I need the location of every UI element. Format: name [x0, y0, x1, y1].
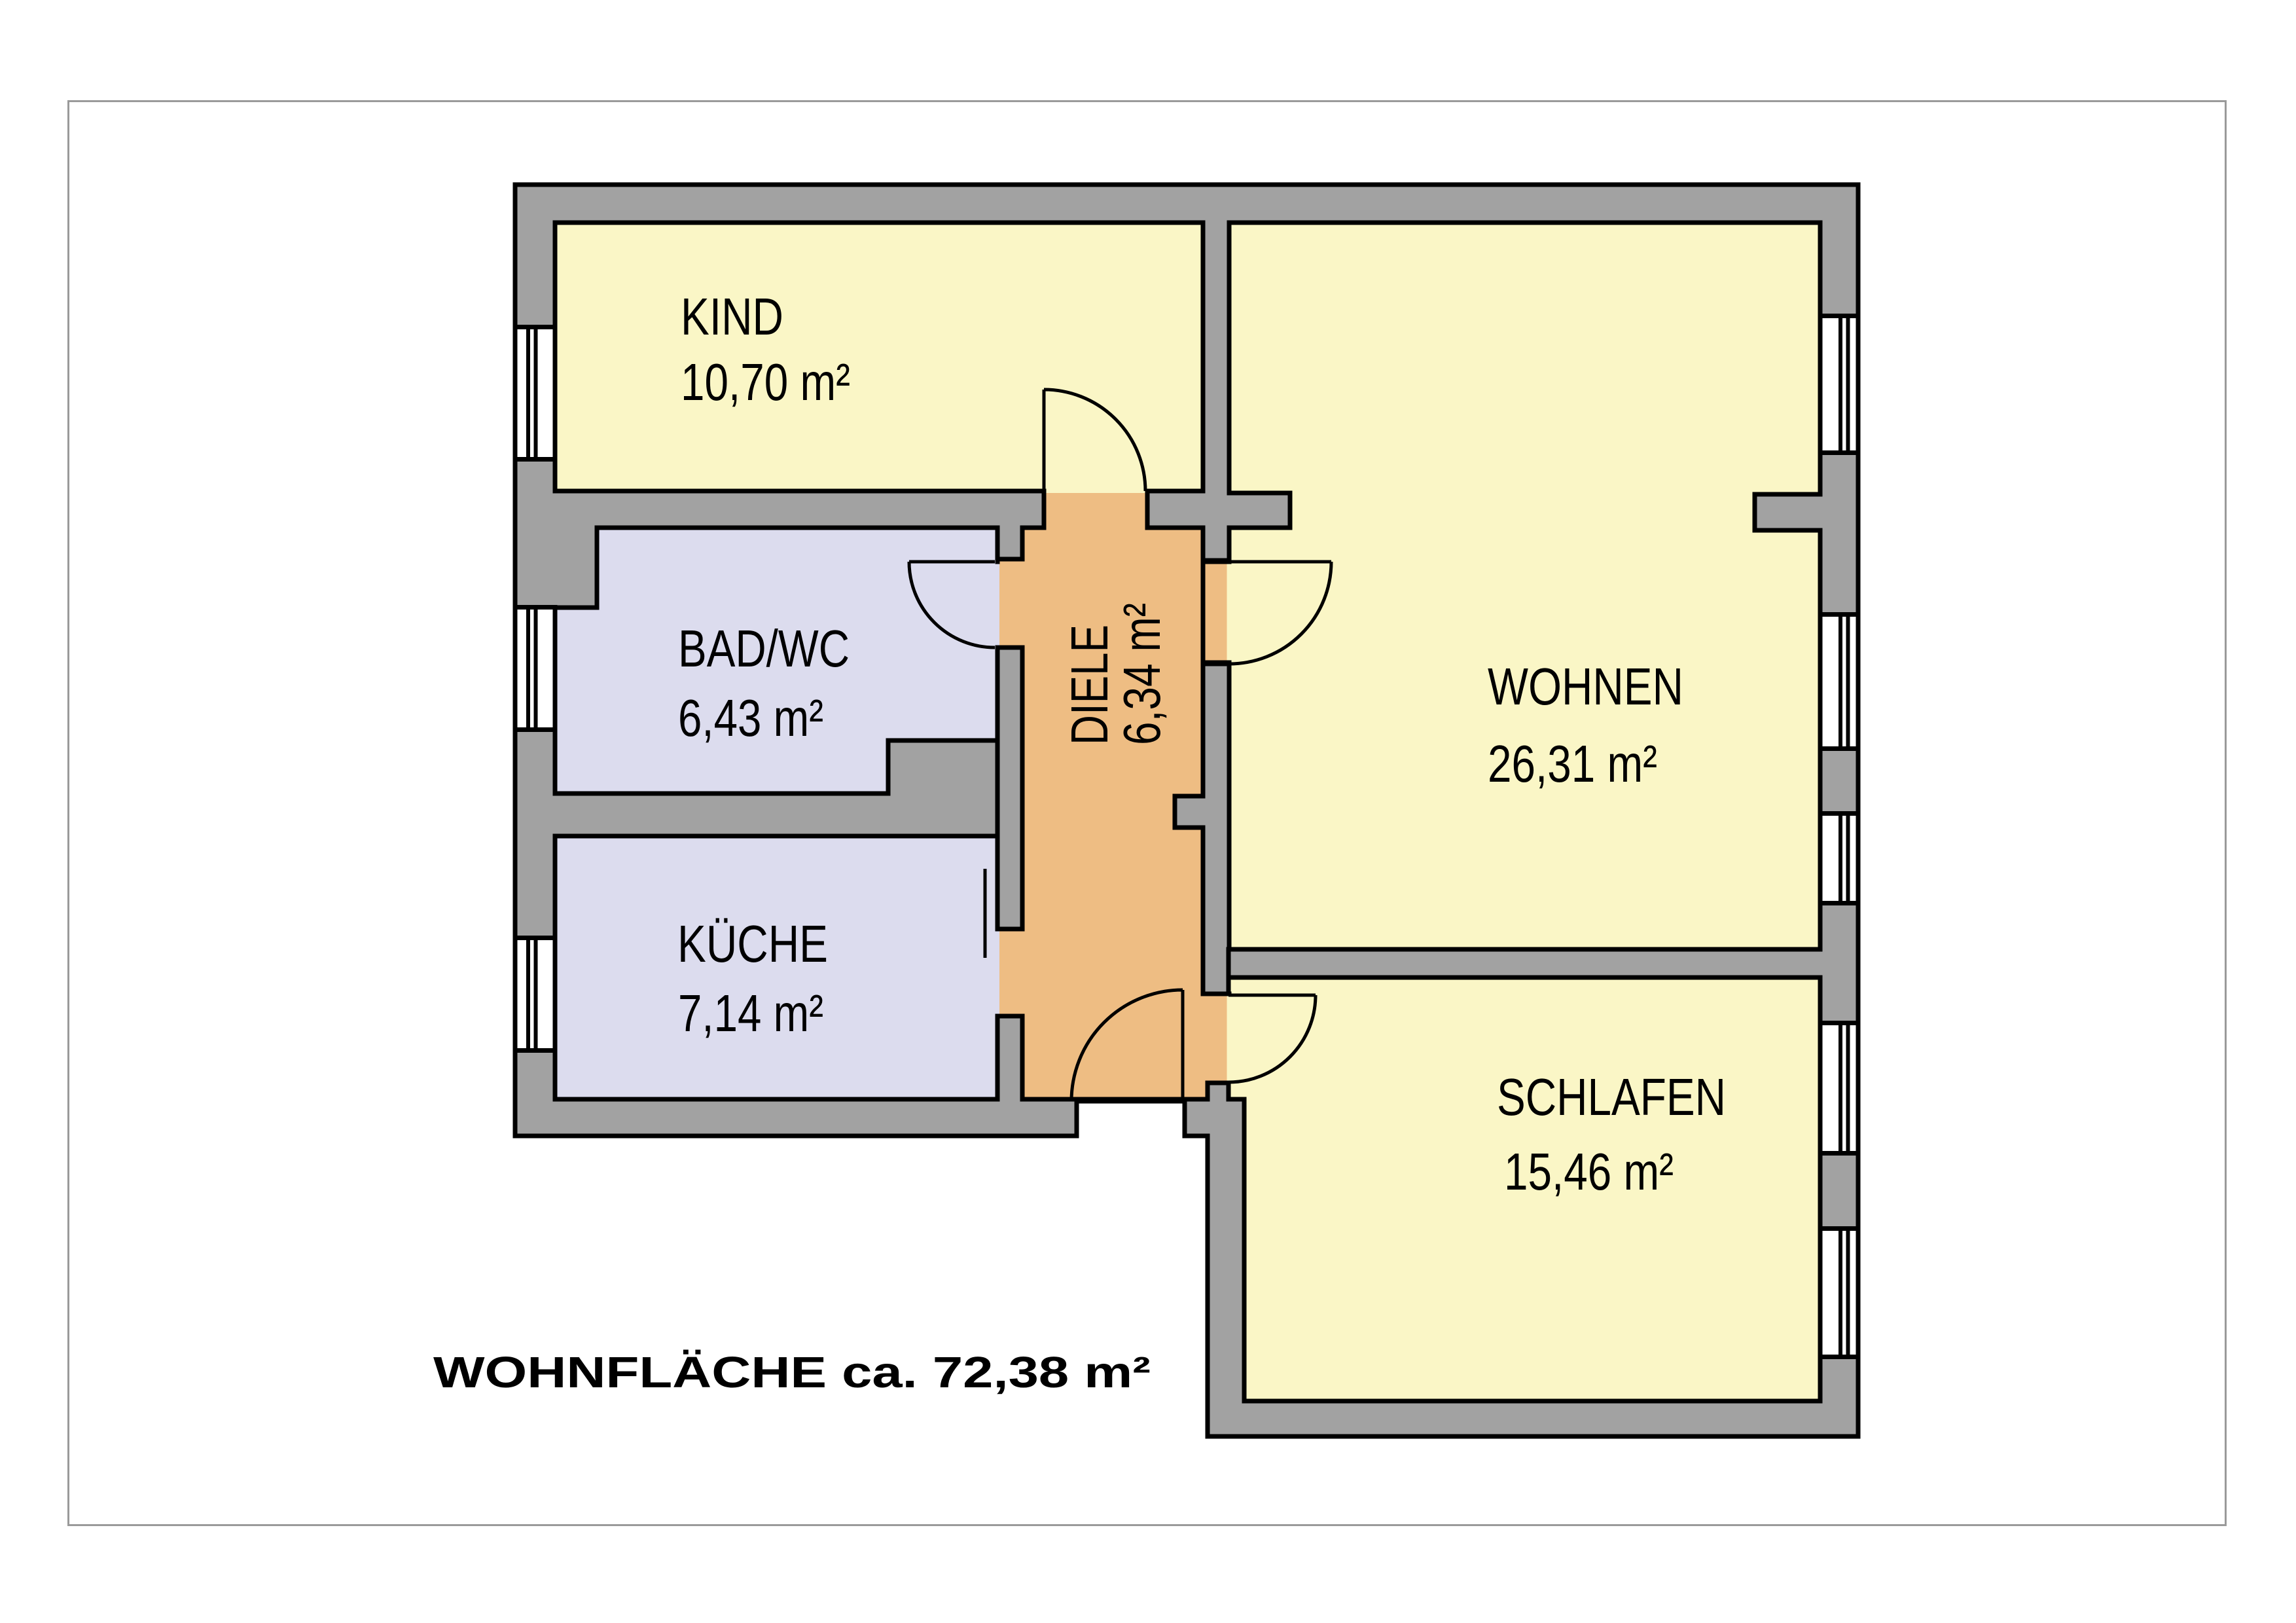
svg-text:10,70 m²: 10,70 m²	[681, 353, 850, 411]
svg-text:7,14 m²: 7,14 m²	[678, 984, 823, 1042]
svg-text:26,31 m²: 26,31 m²	[1488, 735, 1657, 793]
svg-text:SCHLAFEN: SCHLAFEN	[1497, 1068, 1726, 1126]
svg-text:6,43 m²: 6,43 m²	[678, 689, 823, 747]
svg-text:BAD/WC: BAD/WC	[678, 619, 850, 678]
svg-text:KÜCHE: KÜCHE	[677, 915, 828, 973]
svg-text:15,46 m²: 15,46 m²	[1504, 1142, 1674, 1201]
svg-text:6,34 m²: 6,34 m²	[1113, 603, 1171, 745]
svg-text:WOHNEN: WOHNEN	[1488, 657, 1683, 716]
svg-text:KIND: KIND	[681, 287, 783, 346]
svg-text:DIELE: DIELE	[1060, 625, 1119, 745]
svg-text:WOHNFLÄCHE ca. 72,38 m²: WOHNFLÄCHE ca. 72,38 m²	[433, 1348, 1151, 1397]
